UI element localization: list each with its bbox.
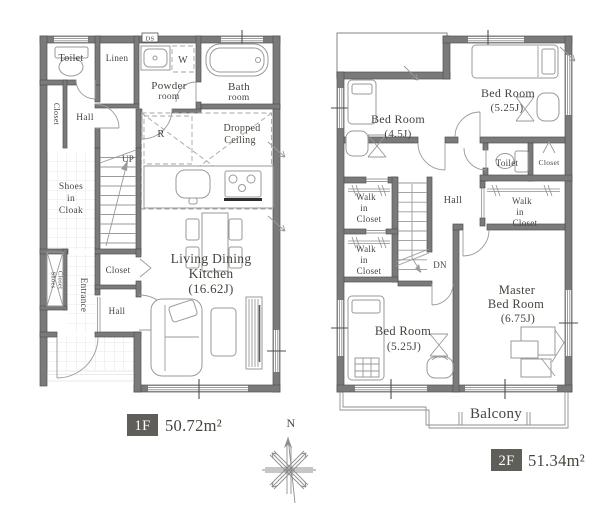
label-ds: DS xyxy=(146,36,155,43)
floor-plan-sheet: Toilet Linen Powder room Bath room DS W … xyxy=(0,0,615,524)
room-label-wic-a1: Walk xyxy=(356,192,376,202)
room-label-toilet-2f: Toilet xyxy=(496,158,519,168)
room-label-hall-upper: Hall xyxy=(76,113,94,123)
kitchen-counter xyxy=(144,166,273,208)
room-label-powder-1: Powder xyxy=(151,80,186,92)
room-label-linen: Linen xyxy=(106,53,129,63)
label-up: UP xyxy=(122,154,134,164)
room-label-closet-2f: Closet xyxy=(539,158,561,167)
room-label-cloak-1: Shoes xyxy=(59,182,83,192)
master-furniture xyxy=(511,327,565,377)
room-label-bed525a-2: (5.25J) xyxy=(491,102,524,114)
room-label-bed525b-1: Bed Room xyxy=(375,324,431,338)
floor-plan-drawing: Toilet Linen Powder room Bath room DS W … xyxy=(0,0,615,524)
room-label-bed45-2: (4.5J) xyxy=(384,128,411,140)
coffee-table xyxy=(211,308,236,356)
room-label-bath-1: Bath xyxy=(228,81,250,93)
room-label-master-3: (6.75J) xyxy=(501,313,535,325)
stairs-down xyxy=(396,183,429,273)
compass-rose: N xyxy=(262,416,316,503)
floor2-plan: Bed Room (4.5J) Bed Room (5.25J) Toilet … xyxy=(331,30,578,428)
room-label-cloak-3: Cloak xyxy=(59,206,83,216)
sofa xyxy=(151,299,202,376)
bed-525b xyxy=(348,296,384,380)
floor1-area-text: 50.72m² xyxy=(165,416,222,435)
room-label-master-2: Bed Room xyxy=(488,297,544,311)
label-fridge: R xyxy=(157,129,164,140)
room-label-powder-2: room xyxy=(158,92,180,102)
room-label-wic-a2: in xyxy=(360,203,368,213)
stairs-up xyxy=(100,150,136,246)
room-label-bed45-1: Bed Room xyxy=(371,112,425,126)
floor2-badge-text: 2F xyxy=(499,453,515,469)
room-label-bath-2: room xyxy=(228,93,250,103)
room-label-wic-b3: Closet xyxy=(357,266,382,276)
bathtub xyxy=(206,44,268,76)
compass-arrowhead xyxy=(284,437,292,448)
room-label-toilet-1f: Toilet xyxy=(59,53,84,64)
room-label-master-1: Master xyxy=(499,283,536,297)
room-label-ldk-1: Living Dining xyxy=(171,251,252,266)
room-label-bed525b-2: (5.25J) xyxy=(387,341,421,353)
room-label-bed525a-1: Bed Room xyxy=(481,86,535,100)
room-label-hall-2f: Hall xyxy=(444,195,462,206)
room-label-wic-c2: in xyxy=(516,207,524,217)
roof-outline xyxy=(337,33,447,77)
room-label-closet-upper: Closet xyxy=(52,103,61,126)
room-label-hall-lower: Hall xyxy=(109,306,126,316)
room-label-closet-mid: Closet xyxy=(106,265,131,275)
bed-525a xyxy=(472,45,558,78)
label-dropped-2: Ceiling xyxy=(224,135,256,146)
room-label-shoes-closet-1: Shoes xyxy=(50,271,57,288)
balcony-rail xyxy=(340,392,568,428)
floor2-area-text: 51.34m² xyxy=(528,451,585,470)
tv-board xyxy=(246,297,262,369)
floor1-badge-text: 1F xyxy=(135,418,151,434)
room-label-ldk-3: (16.62J) xyxy=(188,281,233,296)
room-label-wic-b1: Walk xyxy=(356,244,376,254)
room-label-wic-a3: Closet xyxy=(357,214,382,224)
room-label-wic-c1: Walk xyxy=(512,196,532,206)
label-dropped-1: Dropped xyxy=(223,123,260,134)
chair-set-525b xyxy=(427,334,453,378)
floor1-area-label: 1F 50.72m² xyxy=(127,414,222,436)
room-label-wic-c3: Closet xyxy=(513,218,538,228)
chair-set-45 xyxy=(346,131,386,157)
room-label-balcony: Balcony xyxy=(470,406,522,422)
room-label-ldk-2: Kitchen xyxy=(189,266,234,281)
floor2-area-label: 2F 51.34m² xyxy=(491,449,585,471)
room-label-wic-b2: in xyxy=(360,255,368,265)
floor1-plan: Toilet Linen Powder room Bath room DS W … xyxy=(40,30,286,399)
closet-hanger-mark xyxy=(543,142,555,153)
washbasin xyxy=(141,46,170,70)
label-dn: DN xyxy=(433,260,447,270)
label-washer: W xyxy=(178,55,188,66)
compass-north-label: N xyxy=(287,416,296,430)
room-label-entrance: Entrance xyxy=(79,278,89,312)
room-label-cloak-2: in xyxy=(67,194,75,204)
room-label-shoes-closet-2: Closet xyxy=(57,271,64,289)
